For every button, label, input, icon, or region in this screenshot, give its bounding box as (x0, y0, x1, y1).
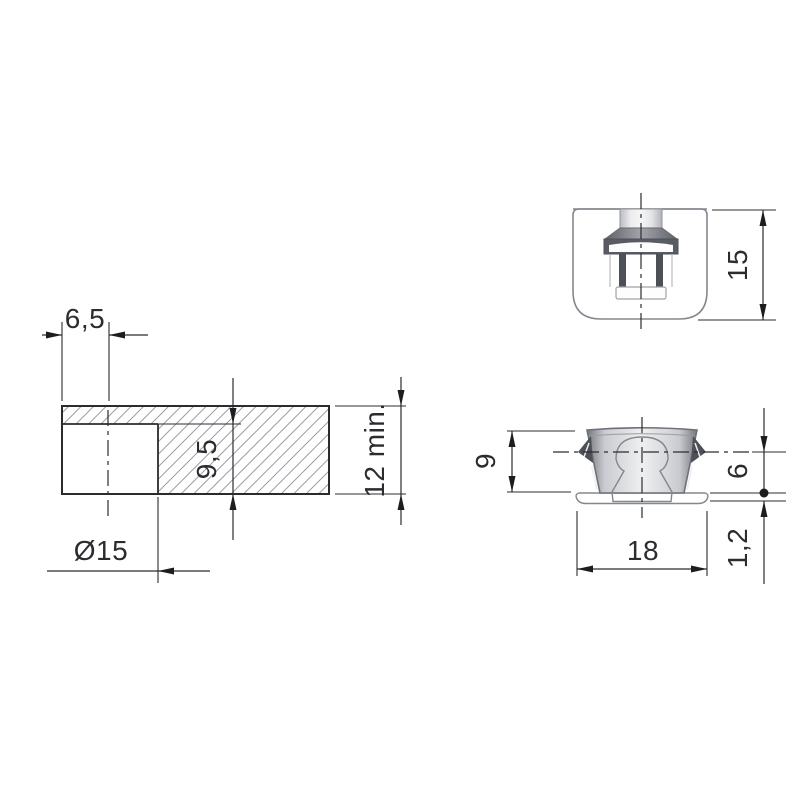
dimension-housing-height: 15 (698, 210, 776, 320)
dimension-arrow (158, 568, 174, 575)
barb-left (578, 436, 593, 463)
dimension-label: 9 (470, 453, 501, 469)
dimension-flange-diameter: 18 (577, 511, 707, 576)
hatch-top-strip (62, 406, 329, 424)
slot-side-wall (619, 254, 626, 287)
technical-drawing-canvas: 6,5 9,5 12 min. Ø15 (0, 0, 800, 800)
dimension-arrow (509, 476, 516, 492)
dimension-arrow (691, 566, 707, 573)
dimension-flange-thickness: 1,2 (710, 501, 786, 584)
dimension-label: 18 (627, 535, 659, 566)
dimension-arrow (761, 501, 768, 517)
view-panel-section: 6,5 9,5 12 min. Ø15 (42, 303, 406, 583)
dimension-body-height: 9 (470, 431, 575, 492)
dimension-label: 6,5 (65, 303, 105, 334)
view-housing-side: 9 6 1,2 18 (470, 408, 786, 584)
dimension-label: 12 min. (359, 402, 390, 497)
dimension-arrow (46, 332, 62, 339)
dimension-panel-thickness: 12 min. (335, 377, 406, 525)
dimension-arrow (761, 436, 768, 452)
dimension-arrow (760, 304, 767, 320)
slot-side-wall (656, 254, 663, 287)
dimension-label: 9,5 (191, 439, 222, 479)
dimension-arrow (398, 390, 405, 406)
dimension-edge-distance: 6,5 (42, 303, 148, 401)
dimension-anchor-depth: 6 (710, 408, 786, 498)
dimension-arrow (398, 494, 405, 510)
dimension-label: 1,2 (722, 528, 753, 568)
dimension-arrow (109, 332, 125, 339)
technical-drawing: 6,5 9,5 12 min. Ø15 (0, 0, 800, 800)
barb-right (691, 436, 706, 463)
dimension-label: Ø15 (74, 535, 128, 566)
dimension-label: 6 (722, 463, 753, 479)
hatch-right-block (158, 424, 329, 494)
dimension-dot (760, 489, 769, 498)
dimension-arrow (577, 566, 593, 573)
dimension-arrow (509, 431, 516, 447)
dimension-arrow (230, 494, 237, 510)
view-housing-front: 15 (573, 193, 776, 333)
dimension-hole-diameter: Ø15 (47, 497, 210, 583)
dimension-arrow (760, 210, 767, 226)
dimension-label: 15 (722, 249, 753, 281)
